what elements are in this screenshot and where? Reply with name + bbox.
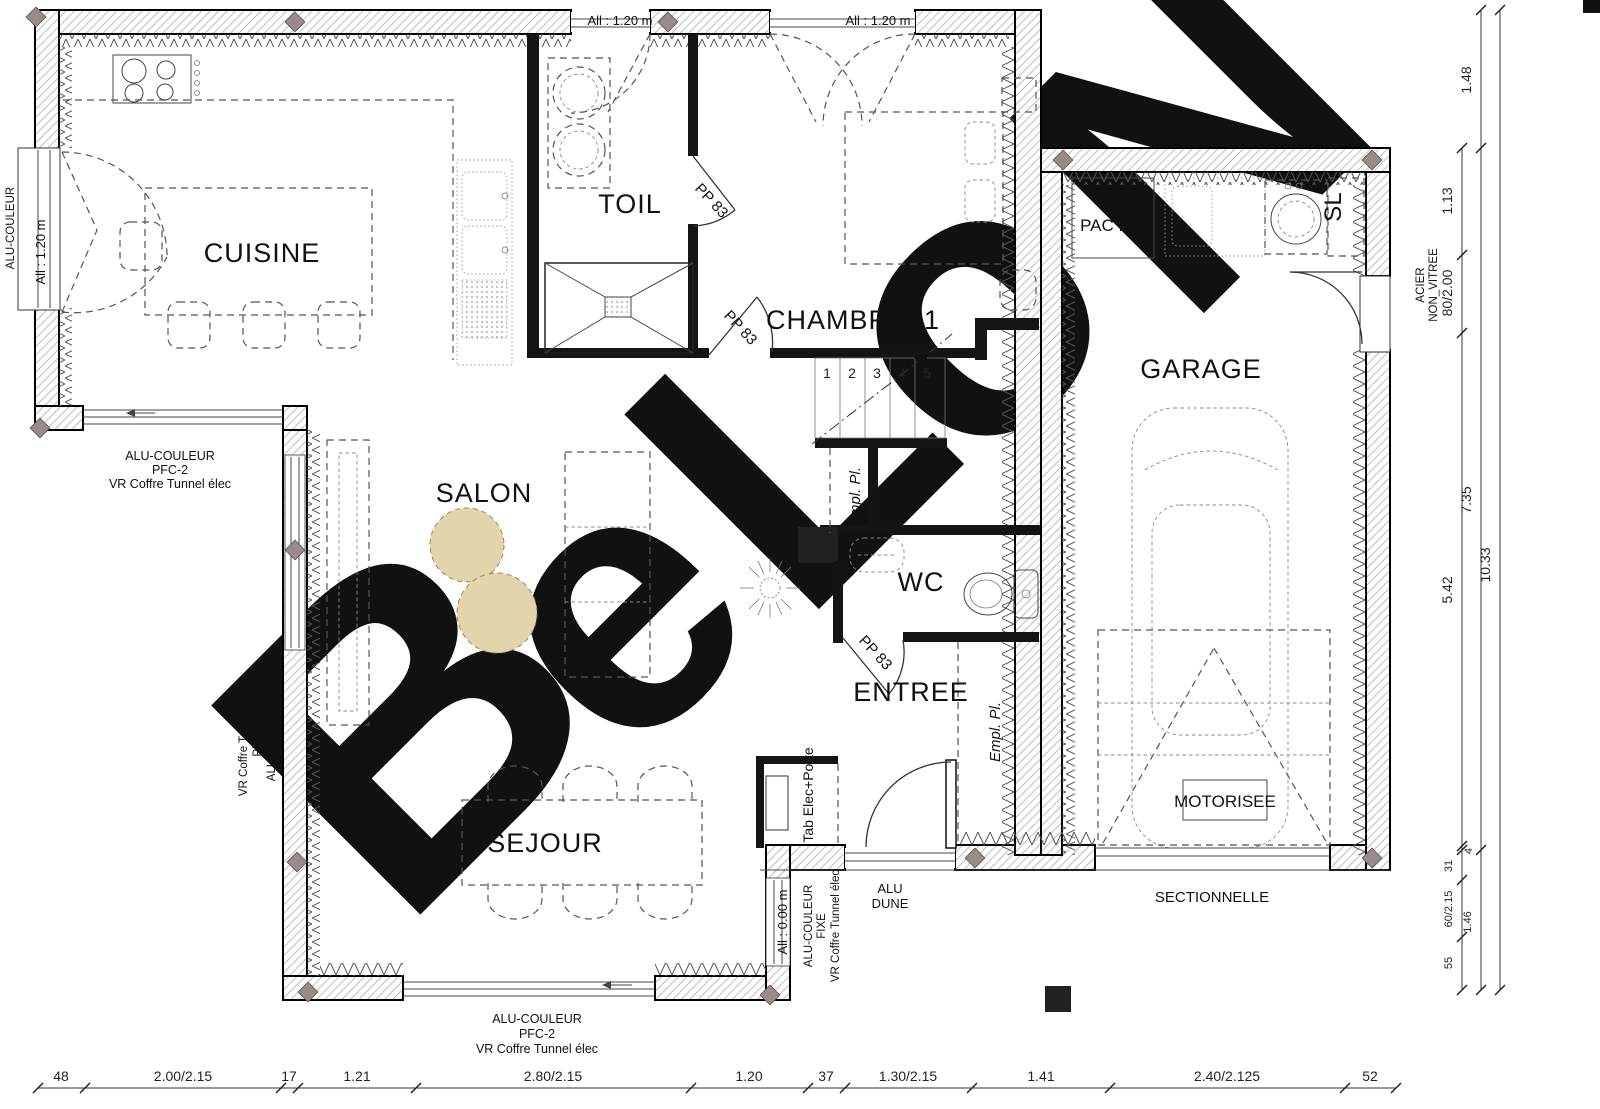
pillar bbox=[798, 527, 838, 563]
room-label-cuisine: CUISINE bbox=[204, 238, 321, 268]
dim-label: 31 bbox=[1443, 860, 1455, 872]
dim-label: 10.33 bbox=[1477, 547, 1493, 582]
label-alu-couleur: ALU-COULEUR bbox=[125, 449, 215, 463]
dim-label: 1.46 bbox=[1462, 911, 1474, 932]
pouf bbox=[457, 573, 537, 653]
label-non-vitree: NON_VITREE bbox=[1428, 248, 1440, 322]
label-dune: DUNE bbox=[872, 896, 909, 911]
stair-num: 4 bbox=[898, 365, 906, 381]
dim-label: 2.00/2.15 bbox=[154, 1068, 213, 1084]
label-pfc2: PFC-2 bbox=[152, 463, 188, 477]
stair-num: 3 bbox=[873, 365, 881, 381]
label-sl: SL bbox=[1320, 192, 1347, 221]
label-tab-elec: Tab Elec+Porte bbox=[800, 747, 816, 843]
dim-label: 1.48 bbox=[1458, 66, 1474, 93]
label-alu-couleur: ALU-COULEUR bbox=[5, 187, 17, 269]
dim-label: 1.13 bbox=[1439, 187, 1455, 214]
room-label-garage: GARAGE bbox=[1140, 354, 1262, 384]
dim-label: 52 bbox=[1362, 1068, 1378, 1084]
label-acier: ACIER bbox=[1415, 267, 1427, 302]
label-empl-pl: Empl. Pl. bbox=[987, 702, 1004, 762]
dimensions-bottom: 48 2.00/2.15 17 1.21 2.80/2.15 1.20 37 1… bbox=[33, 1068, 1401, 1093]
entrance-door-leaf bbox=[946, 760, 956, 848]
dim-label: 1.30/2.15 bbox=[879, 1068, 938, 1084]
dim-label: 1.21 bbox=[343, 1068, 370, 1084]
dim-label: 55 bbox=[1443, 957, 1455, 969]
room-label-chambre: CHAMBRE_1 bbox=[766, 305, 940, 335]
room-label-toil: TOIL bbox=[598, 189, 662, 219]
tab-elec-box bbox=[766, 776, 788, 830]
label-empl-pl: Empl. Pl. bbox=[847, 467, 864, 527]
label-alu-couleur: ALU-COULEUR bbox=[266, 699, 278, 781]
corner-mark bbox=[1583, 0, 1600, 13]
label-motorisee: MOTORISEE bbox=[1174, 792, 1276, 811]
label-vr-coffre: VR Coffre Tunnel élec bbox=[476, 1042, 598, 1056]
label-alu-couleur: ALU-COULEUR bbox=[492, 1012, 582, 1026]
label-allege: All : 0.00 m bbox=[775, 889, 790, 954]
room-label-sejour: SEJOUR bbox=[487, 828, 603, 858]
label-pfc2: PFC-2 bbox=[252, 723, 264, 756]
post-mark bbox=[1045, 986, 1071, 1012]
stair-num: 2 bbox=[848, 365, 856, 381]
floor-plan-page: B e L o N bbox=[0, 0, 1600, 1109]
label-allege: All : 1.20 m bbox=[845, 13, 910, 28]
label-vr-coffre: VR Coffre Tunnel élec bbox=[830, 870, 842, 983]
stair-num: 1 bbox=[823, 365, 831, 381]
dim-label: 5.42 bbox=[1439, 576, 1455, 603]
label-allege: All : 1.20 m bbox=[33, 219, 48, 284]
label-pfc2: PFC-2 bbox=[519, 1027, 555, 1041]
label-vr-coffre: VR Coffre Tunnel élec bbox=[238, 684, 250, 797]
label-vr-coffre: VR Coffre Tunnel élec bbox=[109, 477, 231, 491]
label-pac: PAC INT bbox=[1080, 216, 1146, 235]
label-alu-couleur: ALU-COULEUR bbox=[803, 885, 815, 967]
dim-label: 48 bbox=[53, 1068, 69, 1084]
stair-num: 5 bbox=[923, 365, 931, 381]
room-label-salon: SALON bbox=[436, 478, 533, 508]
dim-label: 80/2.00 bbox=[1439, 269, 1455, 316]
garage-side-door bbox=[1360, 276, 1390, 352]
dim-label: 2.40/2.125 bbox=[1194, 1068, 1260, 1084]
dim-label: 60/2.15 bbox=[1443, 891, 1455, 928]
dim-label: 1.20 bbox=[735, 1068, 762, 1084]
dim-label: 7.35 bbox=[1458, 486, 1474, 513]
label-fixe: FIXE bbox=[816, 913, 828, 939]
label-sectionnelle: SECTIONNELLE bbox=[1155, 889, 1269, 906]
room-label-entree: ENTREE bbox=[853, 677, 969, 707]
dim-label: 17 bbox=[281, 1068, 297, 1084]
dimensions-right: 1.48 1.13 80/2.00 5.42 4 31 60/2.15 55 7… bbox=[1439, 5, 1505, 995]
furniture-kitchen bbox=[63, 55, 512, 365]
dim-label: 2.80/2.15 bbox=[524, 1068, 583, 1084]
label-allege: All : 1.20 m bbox=[587, 13, 652, 28]
dim-label: 37 bbox=[818, 1068, 834, 1084]
pouf bbox=[430, 508, 504, 582]
label-alu: ALU bbox=[877, 881, 902, 896]
dim-label: 1.41 bbox=[1027, 1068, 1054, 1084]
dim-label: 4 bbox=[1463, 848, 1475, 854]
room-label-wc: WC bbox=[898, 567, 945, 597]
floor-plan-canvas: B e L o N bbox=[0, 0, 1600, 1109]
